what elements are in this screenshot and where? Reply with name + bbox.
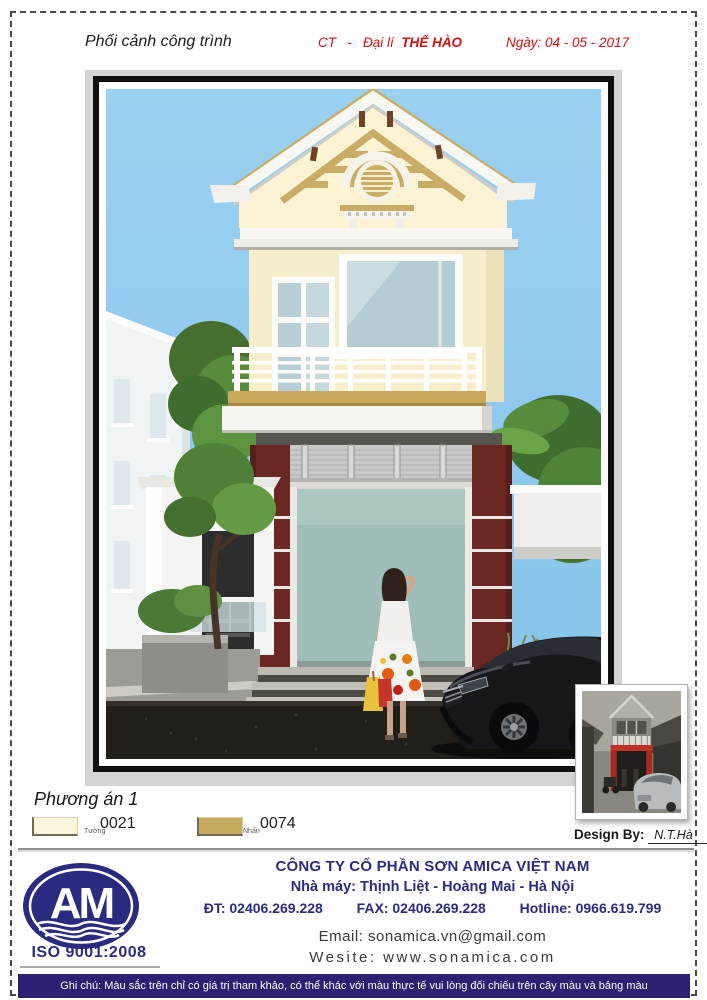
separator: - <box>347 35 352 50</box>
iso-underline <box>20 966 160 968</box>
date-label: Ngày: 04 - 05 - 2017 <box>506 35 629 50</box>
document-page: Phối cảnh công trình CT - Đại lí THẾ HÀO… <box>0 0 707 1000</box>
design-by-label: Design By: <box>574 827 645 842</box>
reference-photo <box>575 684 688 820</box>
swatch-accent-code: 0074 <box>260 815 296 833</box>
dealer-line: CT - Đại lí THẾ HÀO <box>318 35 462 50</box>
disclaimer-note: Ghi chú: Màu sắc trên chỉ có giá trị tha… <box>18 974 690 998</box>
iso-certification: ISO 9001:2008 <box>18 944 160 962</box>
company-name: CÔNG TY CỔ PHẦN SƠN AMICA VIỆT NAM <box>160 858 705 875</box>
right-fence <box>510 485 601 559</box>
designer-name: N.T.Hà <box>648 828 707 844</box>
swatch-wall-color <box>32 817 78 836</box>
footer-divider <box>18 848 694 850</box>
main-render-frame <box>93 76 614 772</box>
svg-text:AM: AM <box>50 879 113 928</box>
hotline-number: Hotline: 0966.619.799 <box>520 900 662 916</box>
company-logo: AM <box>21 862 141 948</box>
swatch-accent-label: Nhấn <box>243 828 260 835</box>
rolling-shutter <box>256 433 502 483</box>
swatch-accent-color <box>197 817 243 836</box>
render-mat <box>85 70 622 786</box>
swatch-wall-code: 0021 <box>100 815 136 833</box>
email-address: Email: sonamica.vn@gmail.com <box>160 928 705 945</box>
phone-line: ĐT: 02406.269.228 FAX: 02406.269.228 Hot… <box>160 900 705 916</box>
website-address: Wesite: www.sonamica.com <box>160 949 705 966</box>
design-by-line: Design By: N.T.Hà <box>574 827 707 844</box>
company-info: CÔNG TY CỔ PHẦN SƠN AMICA VIỆT NAM Nhà m… <box>160 858 705 966</box>
plan-title: Phương án 1 <box>34 789 138 810</box>
factory-address: Nhà máy: Thịnh Liệt - Hoàng Mai - Hà Nội <box>160 879 705 895</box>
house-render-illustration <box>106 89 601 759</box>
silver-car <box>633 773 681 812</box>
reference-photo-illustration <box>582 691 681 813</box>
phone-number: ĐT: 02406.269.228 <box>204 900 323 916</box>
project-code: CT <box>318 35 336 50</box>
am-logo-icon: AM <box>21 862 141 950</box>
fax-number: FAX: 02406.269.228 <box>357 900 486 916</box>
dealer-label: Đại lí <box>363 35 394 50</box>
dealer-name: THẾ HÀO <box>401 35 462 50</box>
page-title: Phối cảnh công trình <box>85 33 232 51</box>
